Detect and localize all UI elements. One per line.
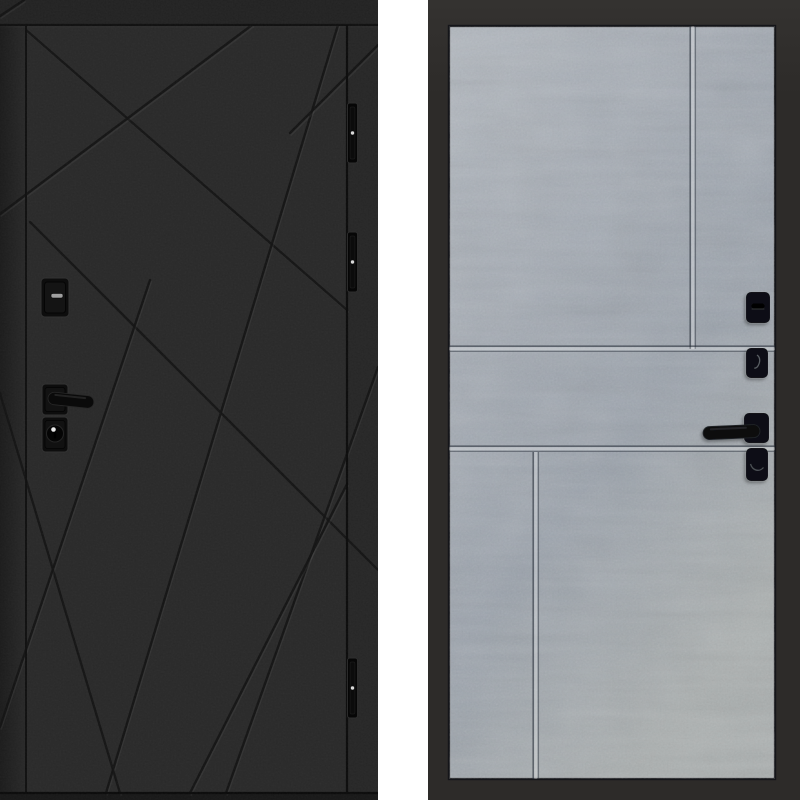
concrete-texture	[449, 26, 775, 779]
thumbturn-back	[746, 292, 770, 323]
hinge-screw-highlight	[351, 260, 354, 263]
door-two-sides-graphic	[0, 0, 800, 800]
thumbturn-slot	[51, 294, 63, 299]
door-product-photo	[0, 0, 800, 800]
divider-gap	[378, 0, 428, 800]
thumbturn-lock	[41, 278, 69, 317]
handle-back-lever	[703, 424, 761, 439]
keyhole	[54, 432, 56, 439]
keyhole-cover-bottom	[746, 448, 768, 481]
door-front-exterior-side	[0, 0, 379, 800]
hinge	[348, 103, 358, 163]
keyhole-cover-top	[746, 348, 768, 378]
hinge-screw-highlight	[351, 131, 354, 134]
keyhole-cover-bottom-body	[746, 448, 768, 481]
hinge	[348, 658, 358, 718]
door-back-interior-side	[428, 0, 800, 800]
keyhole-cover-top-body	[746, 348, 768, 378]
thumbturn-back-slot	[752, 304, 765, 309]
cylinder-highlight-dot	[51, 427, 56, 432]
cylinder-lock	[42, 417, 68, 452]
slot-highlight	[752, 309, 765, 310]
hinge-screw-highlight	[351, 686, 354, 689]
hinge	[348, 232, 358, 292]
